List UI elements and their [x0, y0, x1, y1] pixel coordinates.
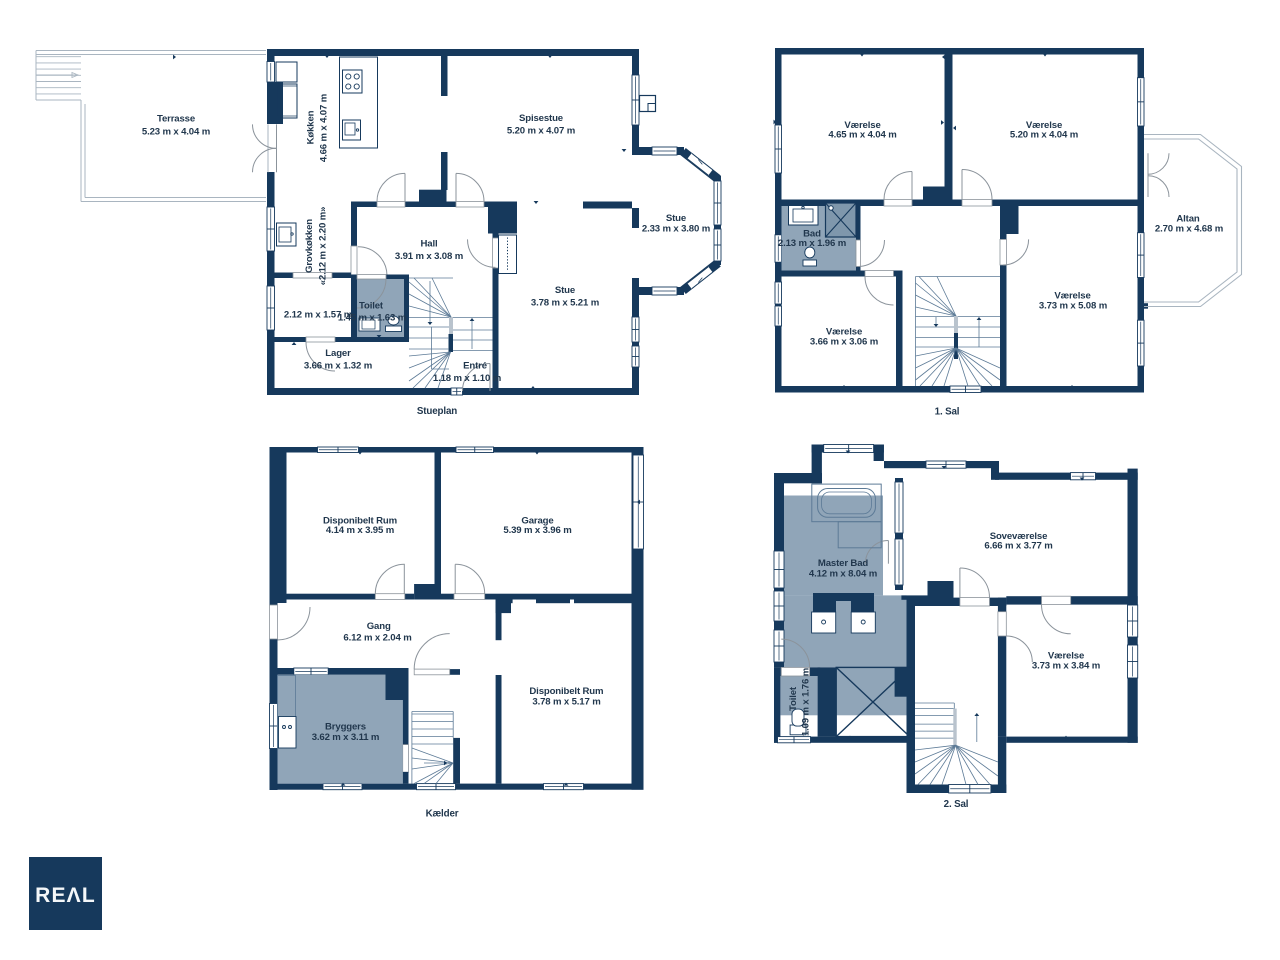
- svg-text:Spisestue: Spisestue: [519, 113, 563, 124]
- svg-text:2.13 m x 1.96 m: 2.13 m x 1.96 m: [778, 238, 846, 249]
- svg-text:6.12 m x 2.04 m: 6.12 m x 2.04 m: [343, 633, 411, 644]
- svg-text:3.91 m x 3.08 m: 3.91 m x 3.08 m: [395, 251, 463, 262]
- svg-text:Lager: Lager: [325, 348, 351, 359]
- svg-text:Hall: Hall: [421, 239, 438, 250]
- svg-text:2.33 m x 3.80 m: 2.33 m x 3.80 m: [642, 224, 710, 235]
- svg-text:5.20 m x 4.07 m: 5.20 m x 4.07 m: [507, 126, 575, 137]
- svg-text:6.66 m x 3.77 m: 6.66 m x 3.77 m: [984, 541, 1052, 552]
- svg-text:3.66 m x 1.32 m: 3.66 m x 1.32 m: [304, 361, 372, 372]
- svg-text:1.18 m x 1.10 m: 1.18 m x 1.10 m: [433, 373, 501, 384]
- svg-text:1.09 m x 1.76 m: 1.09 m x 1.76 m: [801, 668, 812, 736]
- svg-text:2.70 m x 4.68 m: 2.70 m x 4.68 m: [1155, 224, 1223, 235]
- svg-text:Terrasse: Terrasse: [157, 114, 195, 125]
- svg-text:REΛL: REΛL: [35, 884, 96, 907]
- svg-text:«2.12 m x 2.20 m»: «2.12 m x 2.20 m»: [318, 207, 329, 286]
- svg-text:Bryggers: Bryggers: [325, 721, 366, 732]
- svg-text:Disponibelt Rum: Disponibelt Rum: [529, 686, 603, 697]
- svg-text:Gang: Gang: [367, 621, 391, 632]
- svg-text:1. Sal: 1. Sal: [935, 407, 960, 418]
- svg-text:Grovkøkken: Grovkøkken: [304, 219, 315, 273]
- svg-text:5.23 m x 4.04 m: 5.23 m x 4.04 m: [142, 127, 210, 138]
- svg-text:Toilet: Toilet: [788, 686, 799, 711]
- svg-text:4.14 m x 3.95 m: 4.14 m x 3.95 m: [326, 525, 394, 536]
- svg-text:3.78 m x 5.17 m: 3.78 m x 5.17 m: [532, 696, 600, 707]
- svg-text:Køkken: Køkken: [306, 110, 317, 144]
- svg-text:3.78 m x 5.21 m: 3.78 m x 5.21 m: [531, 298, 599, 309]
- svg-text:Stue: Stue: [555, 285, 575, 296]
- svg-text:Master Bad: Master Bad: [818, 558, 869, 569]
- svg-text:1.45 m x 1.63 m: 1.45 m x 1.63 m: [338, 313, 406, 324]
- svg-text:5.20 m x 4.04 m: 5.20 m x 4.04 m: [1010, 130, 1078, 141]
- svg-text:Stueplan: Stueplan: [417, 406, 457, 417]
- svg-text:Entré: Entré: [463, 361, 487, 372]
- svg-text:3.66 m x 3.06 m: 3.66 m x 3.06 m: [810, 336, 878, 347]
- svg-text:4.65 m x 4.04 m: 4.65 m x 4.04 m: [828, 130, 896, 141]
- svg-text:3.73 m x 3.84 m: 3.73 m x 3.84 m: [1032, 660, 1100, 671]
- svg-text:4.12 m x 8.04 m: 4.12 m x 8.04 m: [809, 569, 877, 580]
- svg-text:4.66 m x 4.07 m: 4.66 m x 4.07 m: [319, 94, 330, 162]
- svg-text:Stue: Stue: [666, 213, 686, 224]
- svg-text:5.39 m x 3.96 m: 5.39 m x 3.96 m: [503, 525, 571, 536]
- svg-text:2. Sal: 2. Sal: [944, 799, 969, 810]
- svg-text:3.73 m x 5.08 m: 3.73 m x 5.08 m: [1039, 300, 1107, 311]
- svg-text:Toilet: Toilet: [359, 301, 384, 312]
- svg-text:3.62 m x 3.11 m: 3.62 m x 3.11 m: [312, 732, 380, 743]
- svg-text:Kælder: Kælder: [426, 809, 459, 820]
